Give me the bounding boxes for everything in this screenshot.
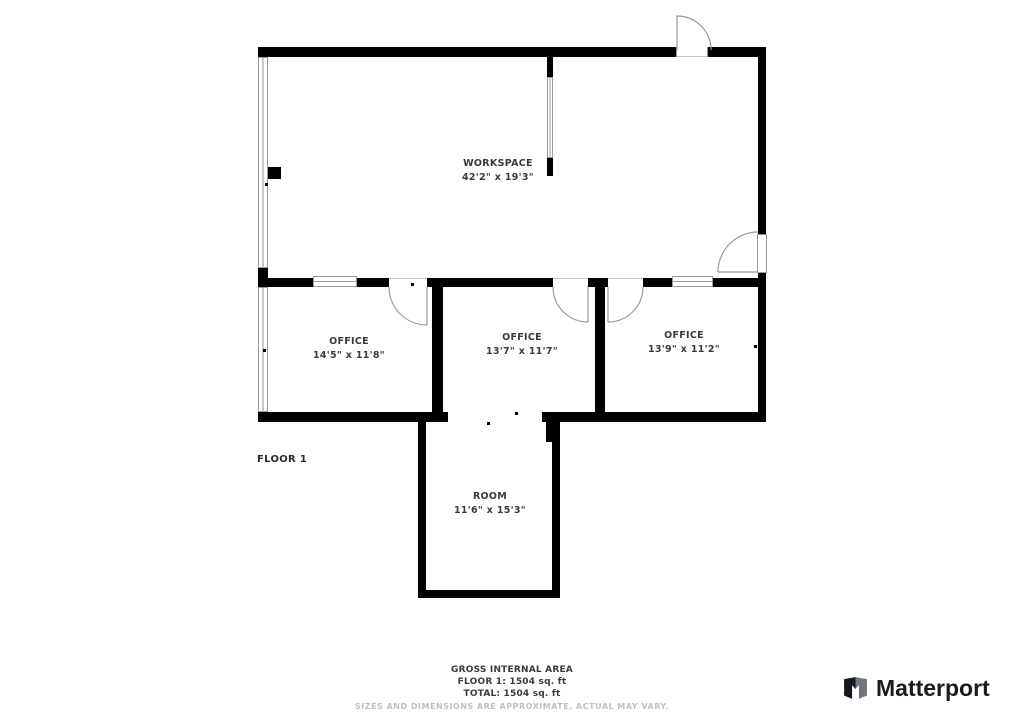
wall-room-bottom	[418, 590, 560, 598]
window-stub	[547, 77, 553, 158]
wall-mid-d	[588, 278, 608, 287]
room-label-room: ROOM 11'6" x 15'3"	[454, 490, 526, 518]
window-left-upper	[258, 57, 268, 268]
room-name: ROOM	[454, 490, 526, 504]
floor-label: FLOOR 1	[257, 454, 307, 465]
door-leaf-right	[757, 234, 767, 273]
window-mid-left	[313, 276, 357, 287]
room-label-workspace: WORKSPACE 42'2" x 19'3"	[462, 157, 534, 185]
wall-room-right	[552, 442, 560, 592]
wall-top-left	[258, 47, 676, 57]
measurement-tick	[419, 503, 422, 506]
measurement-tick	[670, 413, 673, 416]
wall-bottom-right	[542, 412, 766, 422]
room-label-office-3: OFFICE 13'9" x 11'2"	[648, 329, 720, 357]
wall-right-lower	[758, 272, 766, 422]
wall-mid-f	[713, 278, 766, 287]
room-dimensions: 14'5" x 11'8"	[313, 349, 385, 363]
room-name: OFFICE	[648, 329, 720, 343]
room-label-office-2: OFFICE 13'7" x 11'7"	[486, 331, 558, 359]
door-swing-arcs	[0, 0, 1024, 723]
door-arc-office-3	[608, 287, 643, 322]
matterport-logo-icon	[842, 675, 869, 702]
door-opening-office-3	[608, 278, 643, 287]
matterport-logo: Matterport	[842, 675, 990, 702]
room-dimensions: 42'2" x 19'3"	[462, 171, 534, 185]
measurement-tick	[263, 349, 266, 352]
wall-stub-top	[547, 57, 553, 77]
wall-top-right	[708, 47, 766, 57]
floor-plan: WORKSPACE 42'2" x 19'3" OFFICE 14'5" x 1…	[0, 0, 1024, 723]
door-arc-top	[677, 16, 711, 50]
room-dimensions: 11'6" x 15'3"	[454, 504, 526, 518]
wall-stub-bottom	[547, 158, 553, 176]
door-arc-office-2	[553, 287, 588, 322]
room-dimensions: 13'9" x 11'2"	[648, 343, 720, 357]
room-label-office-1: OFFICE 14'5" x 11'8"	[313, 335, 385, 363]
measurement-tick	[754, 345, 757, 348]
measurement-tick	[542, 280, 545, 283]
measurement-tick	[265, 183, 268, 186]
wall-mid-a	[258, 278, 313, 287]
door-opening-top	[676, 47, 708, 57]
measurement-tick	[599, 345, 602, 348]
wall-room-step	[546, 422, 560, 442]
window-mid-right	[672, 276, 713, 287]
measurement-tick	[411, 283, 414, 286]
wall-column-stub	[268, 167, 281, 179]
room-name: OFFICE	[313, 335, 385, 349]
measurement-tick	[515, 412, 518, 415]
summary-disclaimer: SIZES AND DIMENSIONS ARE APPROXIMATE, AC…	[0, 701, 1024, 713]
door-opening-office-2	[553, 278, 588, 287]
wall-mid-e	[643, 278, 672, 287]
wall-room-left	[418, 422, 426, 592]
wall-mid-b	[357, 278, 389, 287]
wall-bottom-left	[258, 412, 448, 422]
matterport-logo-text: Matterport	[876, 675, 990, 702]
wall-right-upper	[758, 57, 766, 235]
measurement-tick	[555, 503, 558, 506]
room-name: OFFICE	[486, 331, 558, 345]
wall-mid-c	[427, 278, 553, 287]
measurement-tick	[487, 422, 490, 425]
door-arc-right	[718, 232, 758, 272]
wall-divider-2	[595, 287, 605, 412]
door-arc-office-1	[389, 287, 427, 325]
room-dimensions: 13'7" x 11'7"	[486, 345, 558, 359]
measurement-tick	[436, 349, 439, 352]
room-name: WORKSPACE	[462, 157, 534, 171]
door-opening-office-1	[389, 278, 427, 287]
